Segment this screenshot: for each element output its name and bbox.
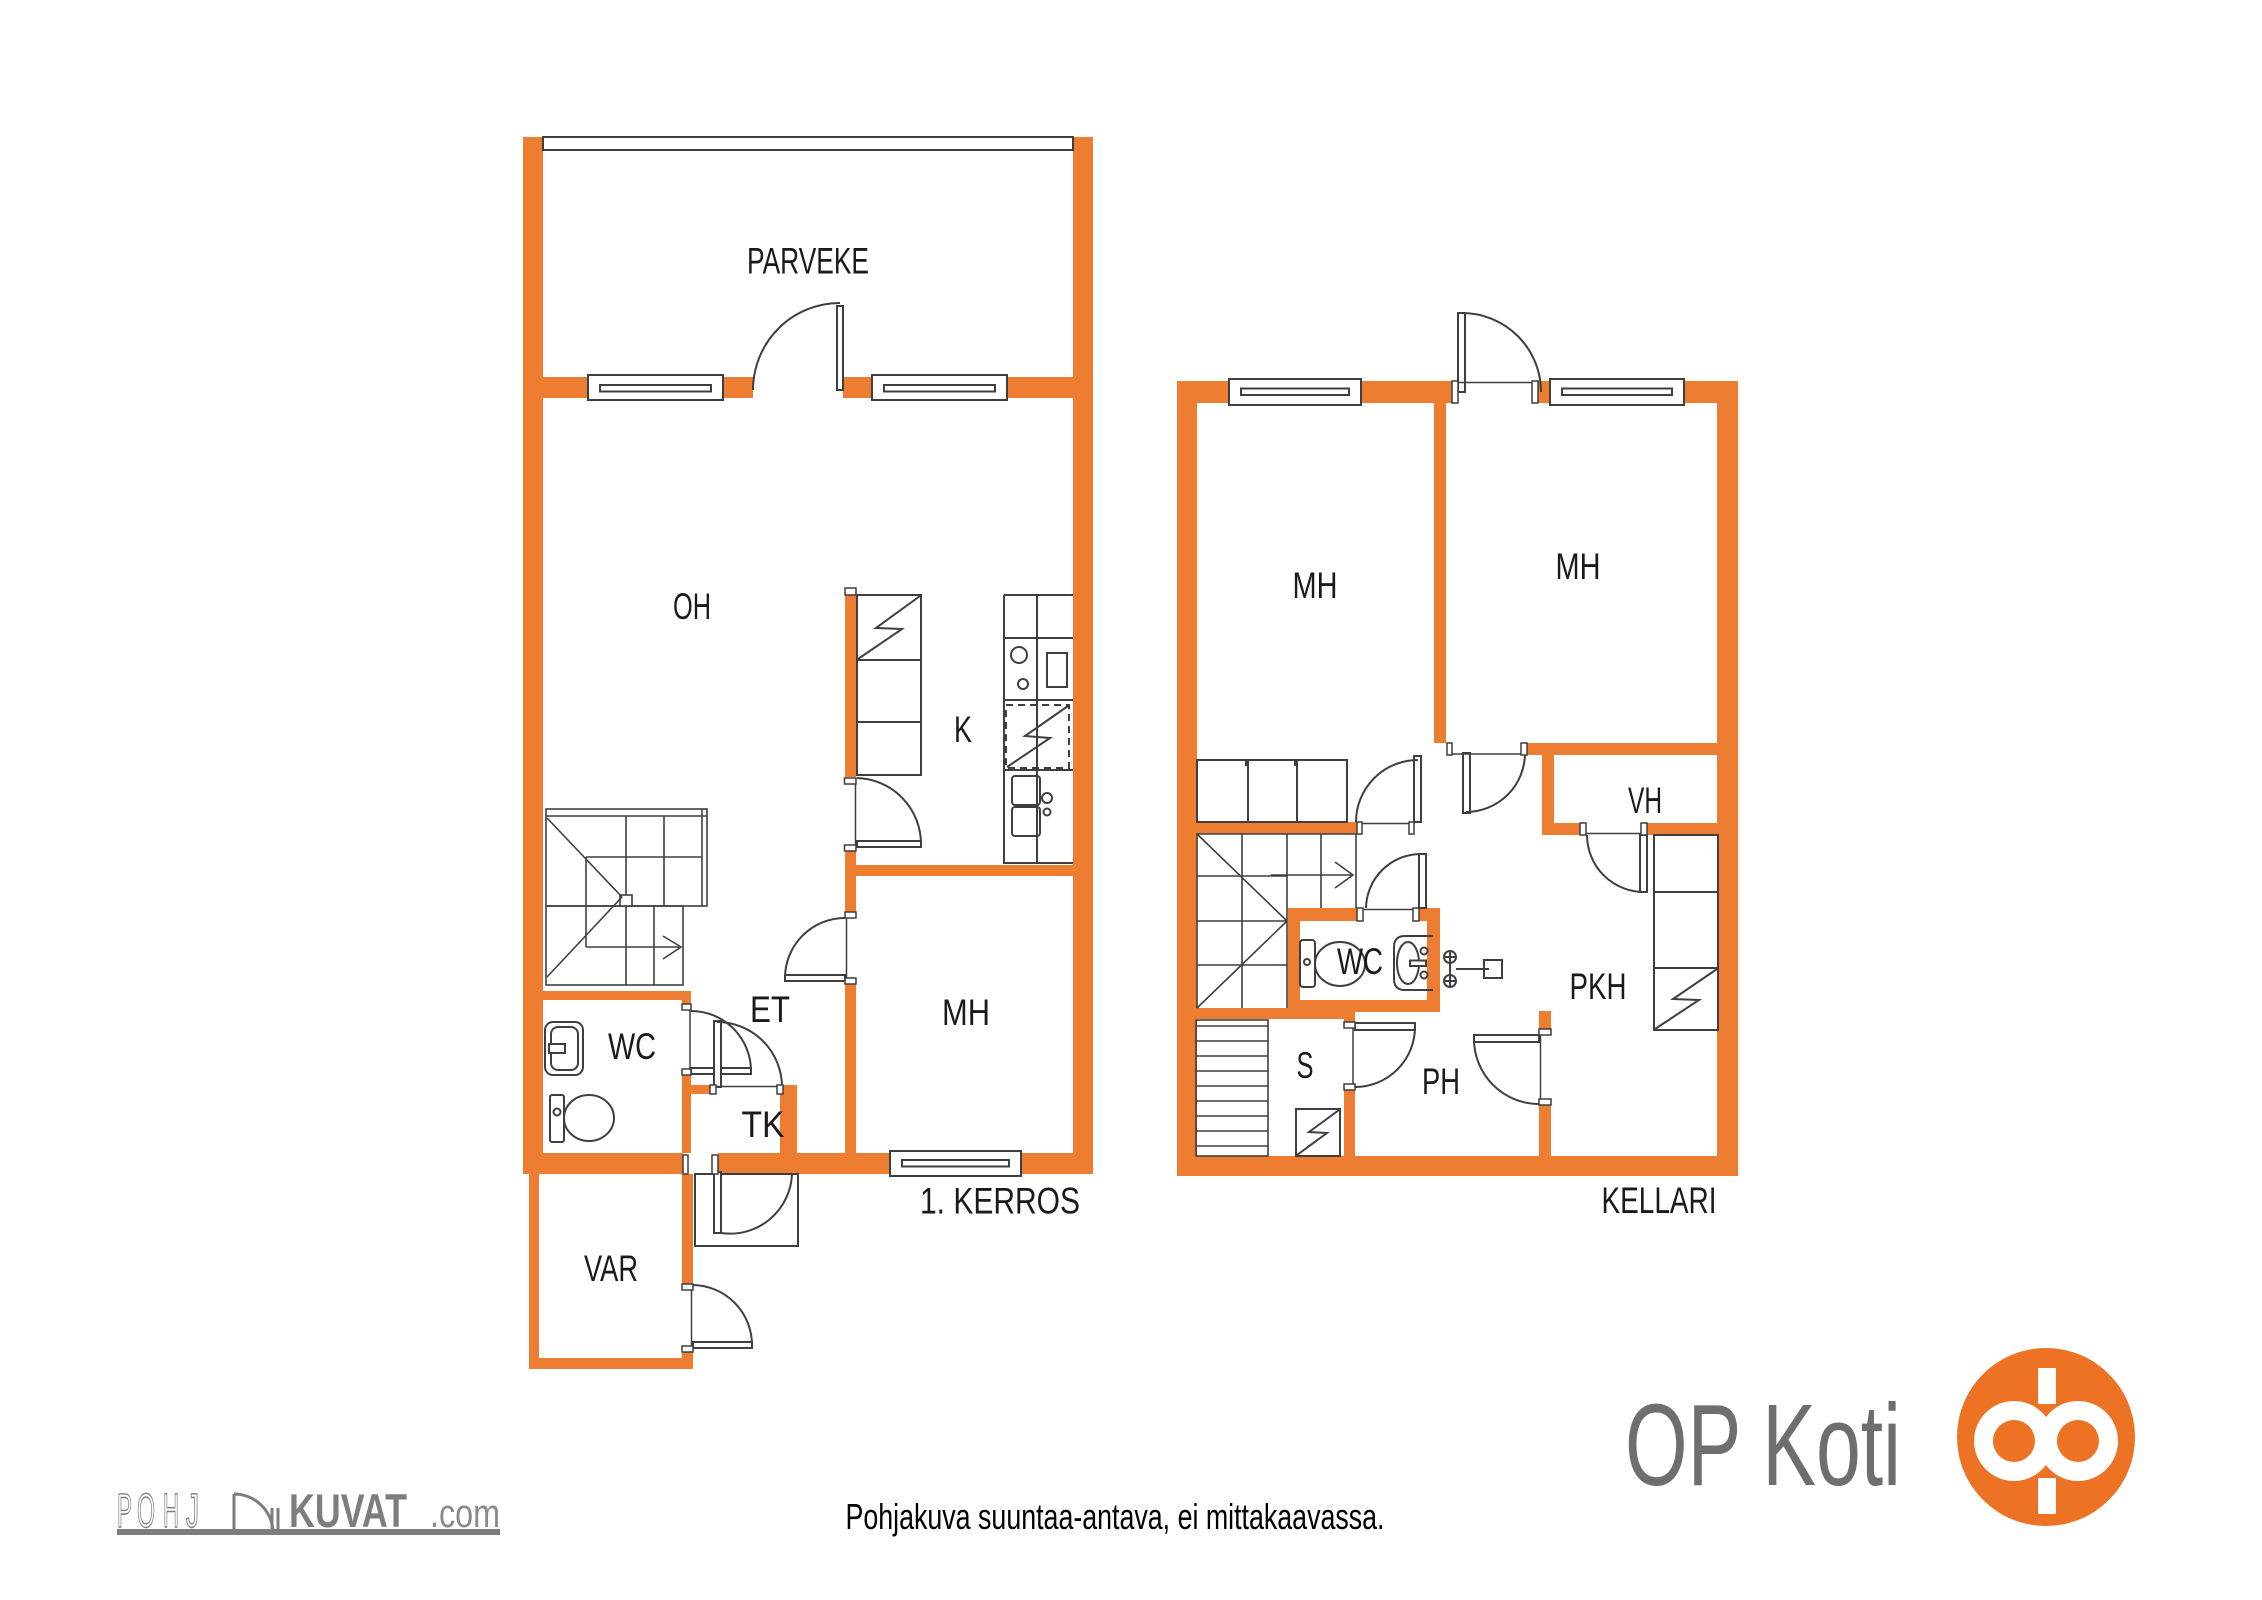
svg-text:PKH: PKH — [1570, 966, 1627, 1007]
svg-text:WC: WC — [1337, 941, 1383, 982]
svg-text:VH: VH — [1628, 780, 1662, 821]
svg-text:WC: WC — [608, 1026, 656, 1067]
svg-text:OH: OH — [673, 586, 711, 627]
svg-text:Pohjakuva suuntaa-antava, ei m: Pohjakuva suuntaa-antava, ei mittakaavas… — [846, 1496, 1385, 1537]
svg-text:MH: MH — [1293, 565, 1338, 606]
svg-text:KELLARI: KELLARI — [1602, 1180, 1717, 1221]
svg-text:MH: MH — [942, 992, 990, 1033]
svg-text:1. KERROS: 1. KERROS — [920, 1181, 1080, 1222]
svg-text:TK: TK — [742, 1104, 785, 1145]
svg-text:PARVEKE: PARVEKE — [747, 241, 869, 282]
svg-text:MH: MH — [1556, 546, 1601, 587]
svg-text:S: S — [1297, 1045, 1314, 1086]
svg-text:VAR: VAR — [584, 1248, 638, 1289]
svg-text:OP Koti: OP Koti — [1625, 1380, 1901, 1510]
svg-text:K: K — [954, 709, 972, 750]
svg-text:PH: PH — [1422, 1061, 1460, 1102]
svg-text:ET: ET — [750, 989, 790, 1030]
